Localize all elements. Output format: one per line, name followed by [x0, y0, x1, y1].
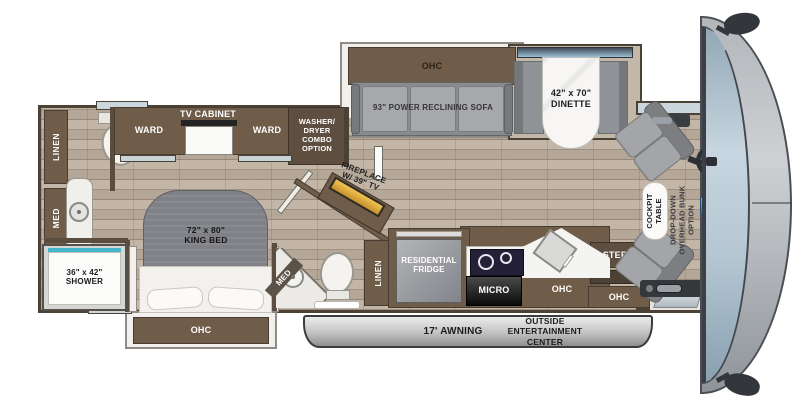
rear-med-label: MED — [51, 208, 61, 228]
king-bed-label: 72" x 80" KING BED — [158, 222, 254, 248]
tv-cabinet-front — [185, 126, 233, 155]
steering-hub — [706, 157, 717, 166]
bed-slide-wall-left — [129, 246, 137, 312]
midbath-toilet-mat — [314, 301, 360, 309]
cockpit-table-label: COCKPIT TABLE — [646, 182, 664, 240]
front-cap-seam — [752, 202, 792, 204]
side-mirror-bottom — [722, 370, 762, 398]
shower-glass-door — [48, 248, 121, 252]
bedroom-living-wall — [344, 107, 349, 167]
bed-ohc-label: OHC — [191, 325, 212, 336]
rv-floor-plan: LINEN MED 36" x 42" SHOWER WARD TV CABIN… — [0, 0, 800, 408]
sofa-label: 93" POWER RECLINING SOFA — [354, 102, 512, 114]
rear-sink-drain — [77, 210, 81, 214]
bedroom-window-right — [238, 155, 292, 162]
cooktop-burner-left — [478, 254, 494, 270]
cooktop-burner-right — [500, 252, 512, 264]
pillow-left — [146, 286, 203, 311]
rear-linen-label: LINEN — [51, 133, 61, 161]
sofa-ohc-label: OHC — [422, 61, 443, 72]
rear-linen-cabinet: LINEN — [44, 110, 68, 184]
washer-dryer-cabinet: WASHER/ DRYER COMBO OPTION — [288, 107, 346, 165]
dash-knob — [646, 285, 653, 292]
micro-label: MICRO — [466, 283, 522, 297]
kitchen-ohc-label: OHC — [526, 282, 598, 296]
fridge-label: RESIDENTIAL FRIDGE — [396, 252, 462, 278]
shower-label: 36" x 42" SHOWER — [48, 262, 121, 292]
pillow-right — [207, 286, 264, 311]
washer-dryer-label: WASHER/ DRYER COMBO OPTION — [299, 118, 335, 153]
dash-radio — [656, 284, 682, 293]
vanity-shower-wall — [44, 238, 128, 243]
ward-left-label: WARD — [118, 122, 180, 138]
fridge-top-counter — [396, 231, 462, 237]
sofa-ohc-cabinet: OHC — [348, 47, 516, 85]
outside-entertainment-label: OUTSIDE ENTERTAINMENT CENTER — [490, 316, 600, 347]
cockpit-table: COCKPIT TABLE — [642, 182, 668, 240]
bunk-option-label: DROP-DOWN OVERHEAD BUNK OPTION — [670, 168, 697, 272]
overhead-bunk-area: DROP-DOWN OVERHEAD BUNK OPTION — [666, 168, 700, 272]
midbath-toilet-base — [326, 290, 350, 300]
dinette-label: 42" x 70" DINETTE — [534, 86, 608, 112]
dash-top-screen — [652, 117, 672, 124]
ward-right-label: WARD — [238, 122, 296, 138]
entry-ohc-label: OHC — [609, 292, 630, 303]
bed-ohc-cabinet: OHC — [133, 317, 269, 344]
tv-cabinet-label: TV CABINET — [166, 109, 250, 120]
mid-linen-label: LINEN — [374, 260, 383, 287]
bedroom-window-left — [120, 155, 176, 162]
